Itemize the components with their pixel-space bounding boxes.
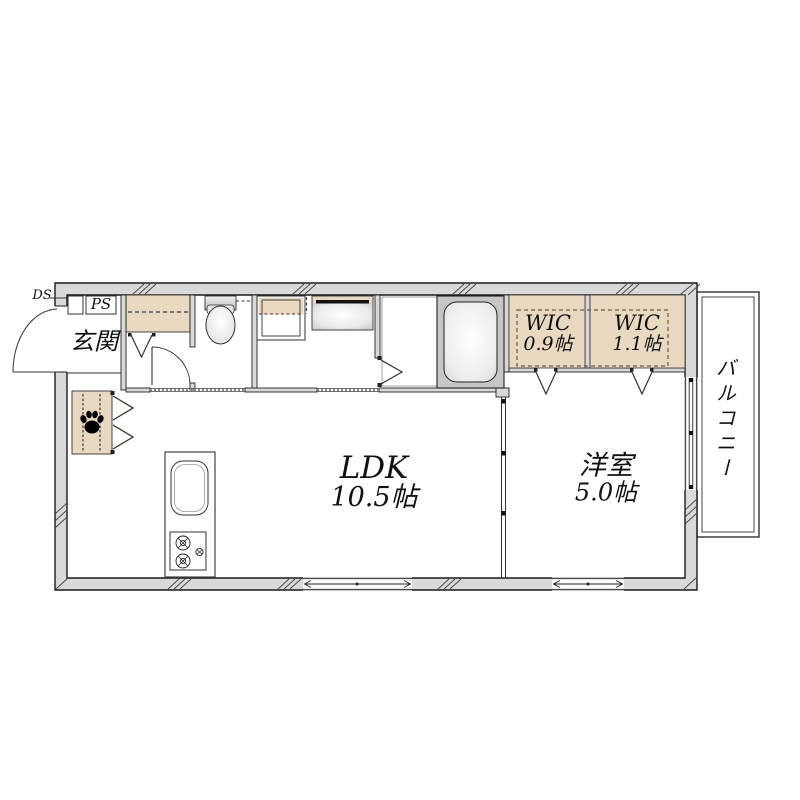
ds-label: DS — [32, 289, 51, 303]
ps-label: PS — [91, 297, 111, 313]
floor-plan-canvas: DS PS 玄関 WIC 0.9帖 WIC 1.1帖 LDK 10.5帖 洋室 … — [0, 0, 800, 800]
ldk-label: LDK 10.5帖 — [330, 452, 417, 512]
wic-right-name: WIC — [614, 311, 660, 335]
bathtub — [444, 302, 497, 382]
wic-left-name: WIC — [525, 311, 571, 335]
wic-left-label: WIC 0.9帖 — [523, 313, 572, 355]
ldk-name: LDK — [340, 450, 409, 486]
entrance-door — [13, 306, 68, 372]
bedroom-size: 5.0帖 — [575, 481, 637, 506]
bedroom-window — [552, 578, 624, 591]
floor-plan-drawing — [0, 0, 800, 800]
stove — [170, 532, 206, 570]
entrance-label: 玄関 — [70, 330, 118, 355]
balcony-label: バルコニー — [714, 358, 735, 483]
bedroom-label: 洋室 5.0帖 — [575, 452, 637, 505]
ldk-size: 10.5帖 — [330, 484, 417, 512]
bedroom-name: 洋室 — [579, 450, 633, 481]
wic-right-label: WIC 1.1帖 — [612, 313, 661, 355]
ldk-window — [303, 578, 412, 591]
kitchen-sink — [171, 461, 208, 515]
washing-machine-space — [257, 296, 307, 340]
wic-right-size: 1.1帖 — [612, 335, 661, 355]
balcony-window — [685, 377, 698, 490]
vanity-washbasin — [312, 296, 373, 330]
kitchen-counter — [165, 452, 215, 577]
wic-left-size: 0.9帖 — [523, 335, 572, 355]
